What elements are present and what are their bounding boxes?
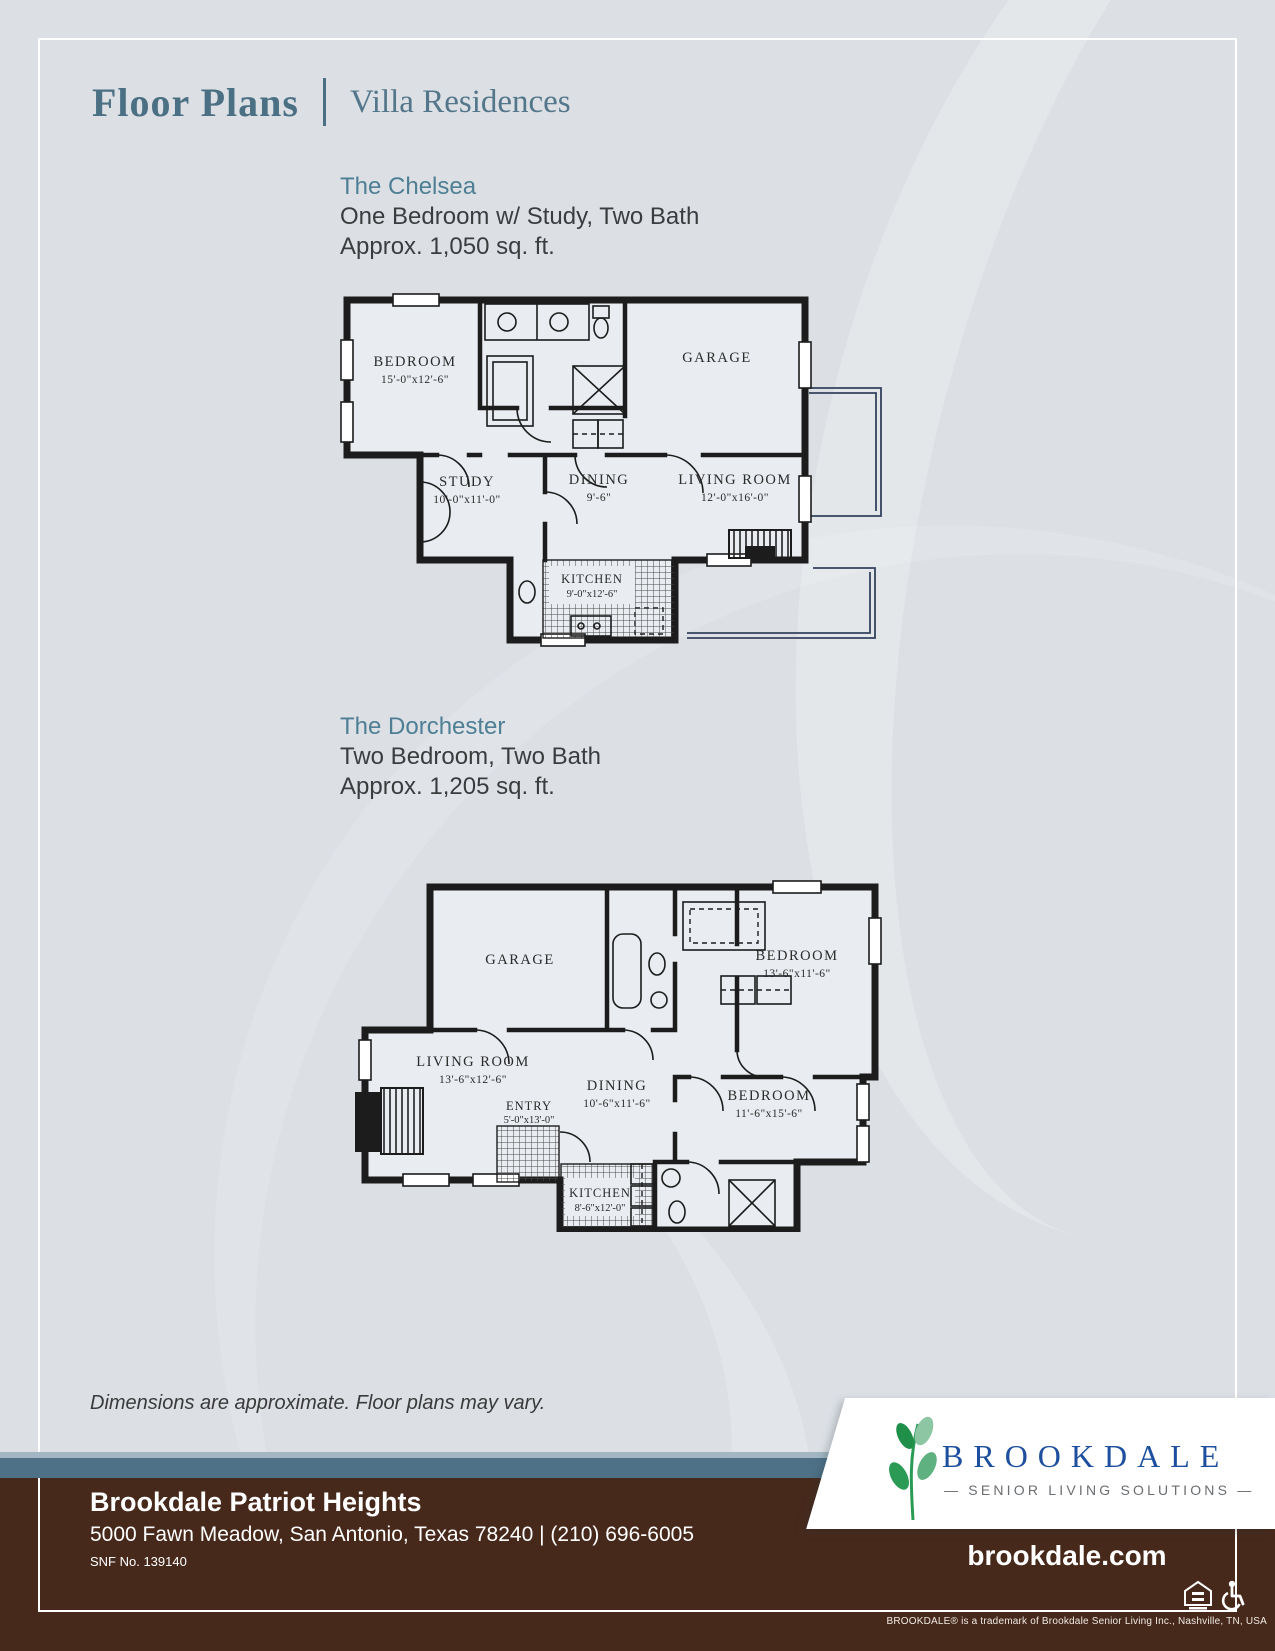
license-number: SNF No. 139140 [90, 1554, 187, 1569]
plan-name: The Dorchester [340, 712, 601, 742]
plan-heading-chelsea: The Chelsea One Bedroom w/ Study, Two Ba… [340, 172, 699, 262]
community-name: Brookdale Patriot Heights [90, 1487, 422, 1518]
room-name: ENTRY [506, 1099, 552, 1113]
wheelchair-accessible-icon [1221, 1580, 1245, 1610]
room-dims: 9'-0"x12'-6" [567, 589, 618, 600]
plan-description: One Bedroom w/ Study, Two Bath [340, 202, 699, 232]
room-dims: 13'-6"x12'-6" [439, 1074, 507, 1086]
address-phone-line: 5000 Fawn Meadow, San Antonio, Texas 782… [90, 1523, 694, 1547]
room-name: DINING [569, 472, 630, 488]
floor-plan-chelsea: BEDROOM 15'-0"x12'-6" GARAGE STUDY 10'-0… [335, 290, 885, 655]
footer-icons [1183, 1580, 1245, 1610]
room-dims: 5'-0"x13'-0" [504, 1115, 555, 1126]
plan-heading-dorchester: The Dorchester Two Bedroom, Two Bath App… [340, 712, 601, 802]
equal-housing-icon [1183, 1580, 1213, 1610]
room-name: BEDROOM [373, 354, 456, 370]
disclaimer-text: Dimensions are approximate. Floor plans … [90, 1392, 545, 1415]
plan-area: Approx. 1,205 sq. ft. [340, 772, 601, 802]
title-divider [323, 78, 326, 126]
room-name: GARAGE [682, 350, 751, 366]
page-subtitle: Villa Residences [350, 84, 571, 121]
page-header: Floor Plans Villa Residences [92, 78, 571, 126]
room-name: STUDY [439, 474, 495, 490]
logo-panel: BROOKDALE — SENIOR LIVING SOLUTIONS — [800, 1398, 1275, 1529]
room-dims: 10'-0"x11'-0" [433, 494, 501, 506]
room-name: BEDROOM [755, 948, 838, 964]
room-name: KITCHEN [561, 572, 623, 586]
brochure-page: Floor Plans Villa Residences The Chelsea… [0, 0, 1275, 1651]
fireplace-hatch [729, 530, 791, 558]
room-dims: 15'-0"x12'-6" [381, 374, 449, 386]
page-title: Floor Plans [92, 79, 299, 126]
floor-plan-dorchester: GARAGE BEDROOM 13'-6"x11'-6" LIVING ROOM… [345, 842, 905, 1237]
brookdale-tagline: — SENIOR LIVING SOLUTIONS — [944, 1482, 1254, 1498]
brookdale-leaves-icon [885, 1414, 941, 1522]
website-url: brookdale.com [927, 1540, 1207, 1572]
plan-name: The Chelsea [340, 172, 699, 202]
room-name: LIVING ROOM [678, 472, 792, 488]
trademark-line: BROOKDALE® is a trademark of Brookdale S… [886, 1616, 1267, 1627]
room-name: KITCHEN [569, 1186, 631, 1200]
room-dims: 13'-6"x11'-6" [763, 968, 831, 980]
room-name: GARAGE [485, 952, 554, 968]
room-dims: 11'-6"x15'-6" [735, 1108, 803, 1120]
room-dims: 8'-6"x12'-0" [575, 1203, 626, 1214]
page-border [38, 38, 1237, 1612]
plan-area: Approx. 1,050 sq. ft. [340, 232, 699, 262]
room-dims: 12'-0"x16'-0" [701, 492, 769, 504]
room-dims: 10'-6"x11'-6" [583, 1098, 651, 1110]
room-dims: 9'-6" [587, 492, 612, 504]
room-name: BEDROOM [727, 1088, 810, 1104]
brookdale-wordmark: BROOKDALE [942, 1438, 1229, 1475]
entry-tile [497, 1126, 559, 1182]
room-name: DINING [587, 1078, 648, 1094]
plan-description: Two Bedroom, Two Bath [340, 742, 601, 772]
room-name: LIVING ROOM [416, 1054, 530, 1070]
bay-stairs [355, 1088, 423, 1154]
